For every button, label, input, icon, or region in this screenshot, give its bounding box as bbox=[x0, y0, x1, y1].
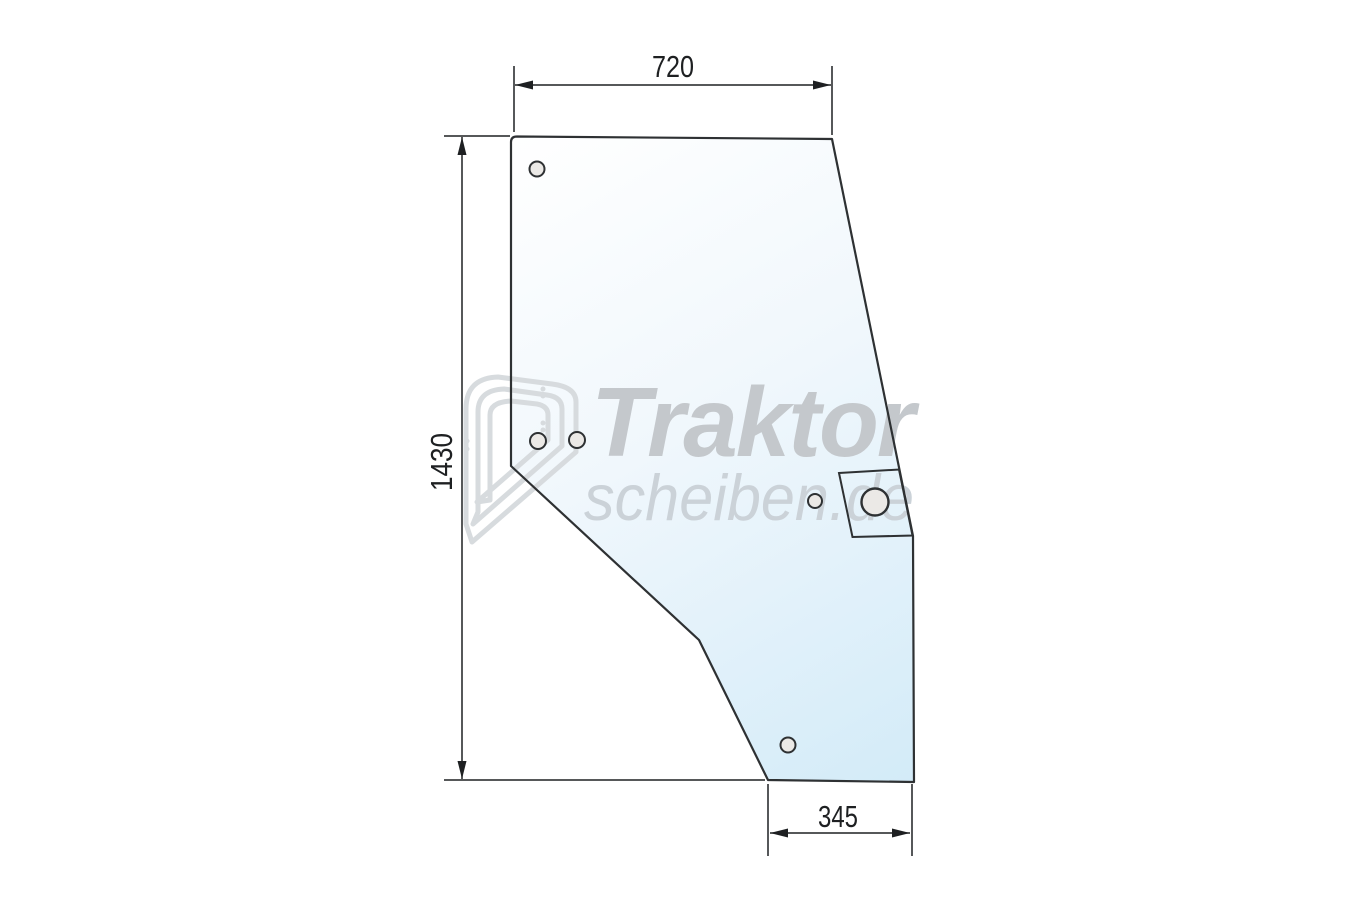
dimension-label-bottom: 345 bbox=[818, 799, 858, 834]
arrowhead-bottom bbox=[458, 761, 467, 779]
arrowhead-left bbox=[515, 81, 533, 90]
technical-drawing-svg: Traktor scheiben.de 720 bbox=[0, 0, 1350, 900]
handle-hole bbox=[862, 489, 889, 516]
mounting-hole bbox=[530, 162, 545, 177]
arrowhead-left bbox=[770, 829, 788, 838]
logo-dot bbox=[465, 439, 470, 444]
arrowhead-top bbox=[458, 137, 467, 155]
product-image: Traktor scheiben.de 720 bbox=[0, 0, 1350, 900]
mounting-hole bbox=[530, 433, 546, 449]
logo-dot bbox=[465, 447, 470, 452]
mounting-hole bbox=[781, 738, 796, 753]
arrowhead-right bbox=[813, 81, 831, 90]
logo-dot bbox=[541, 428, 546, 433]
arrowhead-right bbox=[892, 829, 910, 838]
watermark: Traktor scheiben.de bbox=[465, 367, 920, 542]
mounting-hole bbox=[808, 494, 822, 508]
mounting-hole bbox=[569, 432, 585, 448]
logo-dot bbox=[541, 421, 546, 426]
logo-dot bbox=[541, 394, 546, 399]
dimension-bottom-width: 345 bbox=[768, 784, 912, 856]
dimension-top-width: 720 bbox=[514, 49, 832, 135]
dimension-label-top: 720 bbox=[652, 49, 694, 84]
dimension-label-left: 1430 bbox=[424, 433, 459, 491]
logo-dot bbox=[541, 387, 546, 392]
